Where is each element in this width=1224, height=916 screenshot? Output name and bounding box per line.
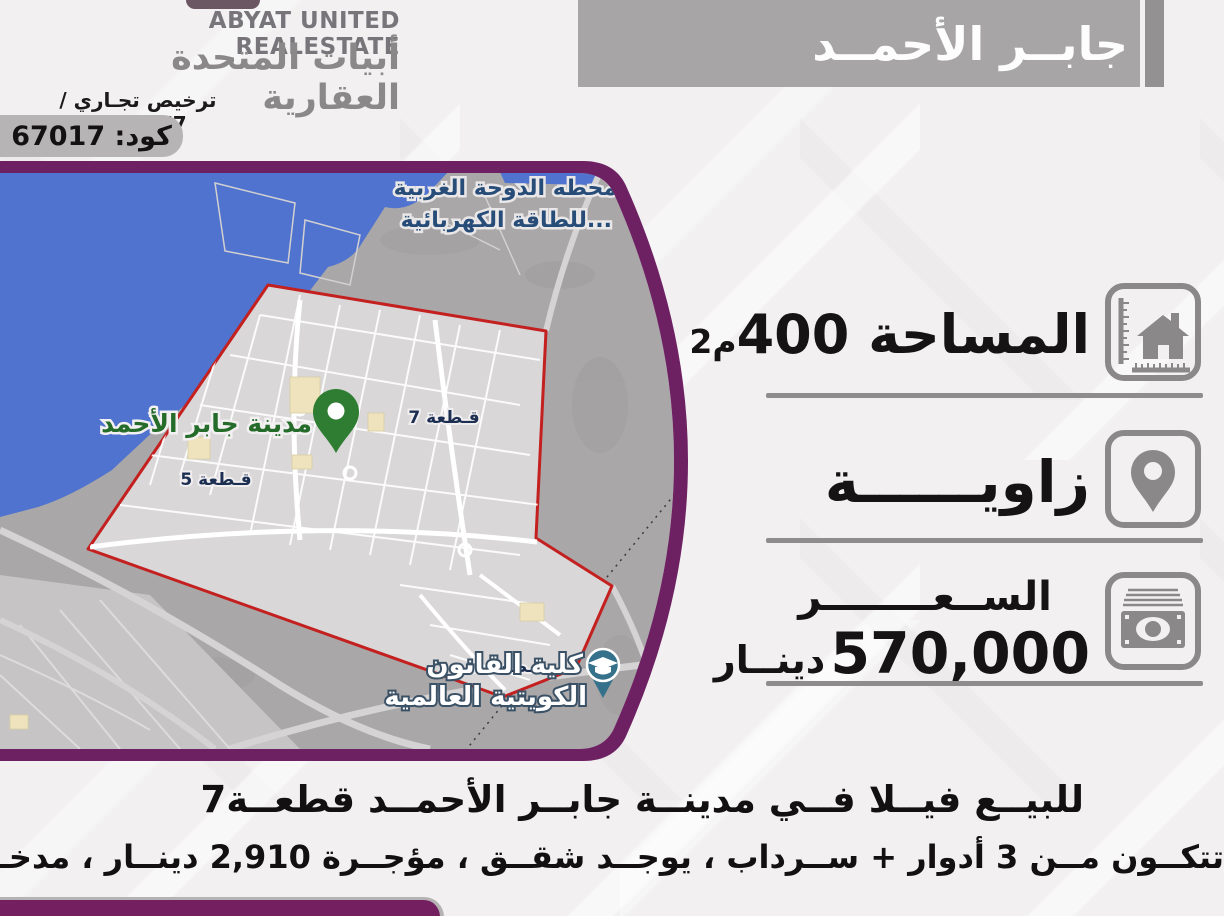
- divider-1: [766, 393, 1203, 398]
- area-icon: [1104, 282, 1202, 382]
- area-label: المساحة: [868, 303, 1090, 366]
- real-estate-flyer: ABYAT UNITED REALESTATE أبيات المتحدة ال…: [0, 0, 1224, 916]
- map-label-city: مدينة جابر الأحمد: [101, 408, 312, 439]
- map-content: قـطعة 7 قـطعة 5 قـطعة 1 مدينة جابر الأحم…: [0, 155, 690, 767]
- map-label-block7: قـطعة 7: [408, 408, 479, 428]
- footer-bar: [0, 897, 444, 916]
- area-unit: م2: [689, 322, 736, 361]
- area-row: المساحة 400م2: [689, 303, 1090, 366]
- map-label-law-1: كلية القانون: [426, 650, 583, 680]
- location-pin-icon: [1104, 429, 1202, 529]
- money-icon: [1104, 571, 1202, 671]
- divider-2: [766, 538, 1203, 543]
- area-number: 400: [737, 303, 850, 366]
- price-label: الســعــــــــر: [760, 575, 1090, 619]
- map-label-power-2: للطاقة الكهربائية...: [401, 208, 612, 233]
- description-line-2: تتكــون مــن 3 أدوار + ســرداب ، يوجــد …: [0, 838, 1224, 876]
- price-row: الســعــــــــر 570,000 دينــار: [760, 575, 1090, 687]
- banner-accent-bar: [1145, 0, 1164, 87]
- listing-code-badge: كود: 67017: [0, 115, 183, 157]
- map-image: قـطعة 7 قـطعة 5 قـطعة 1 مدينة جابر الأحم…: [0, 155, 690, 767]
- map-label-power-1: محطه الدوحة الغربية: [394, 176, 617, 201]
- corner-row: زاويــــــة: [825, 448, 1090, 516]
- price-currency: دينــار: [714, 638, 825, 682]
- price-value: 570,000 دينــار: [760, 621, 1090, 687]
- divider-3: [766, 681, 1203, 686]
- map-label-block5: قـطعة 5: [180, 470, 251, 490]
- price-number: 570,000: [830, 621, 1090, 687]
- map-label-law-2: الكويتية العالمية: [384, 682, 587, 712]
- description-line-1: للبيــع فيــلا فــي مدينــة جابــر الأحم…: [200, 778, 1084, 821]
- location-banner: جابــر الأحمــد: [578, 0, 1140, 87]
- banner-title: جابــر الأحمــد: [812, 21, 1128, 67]
